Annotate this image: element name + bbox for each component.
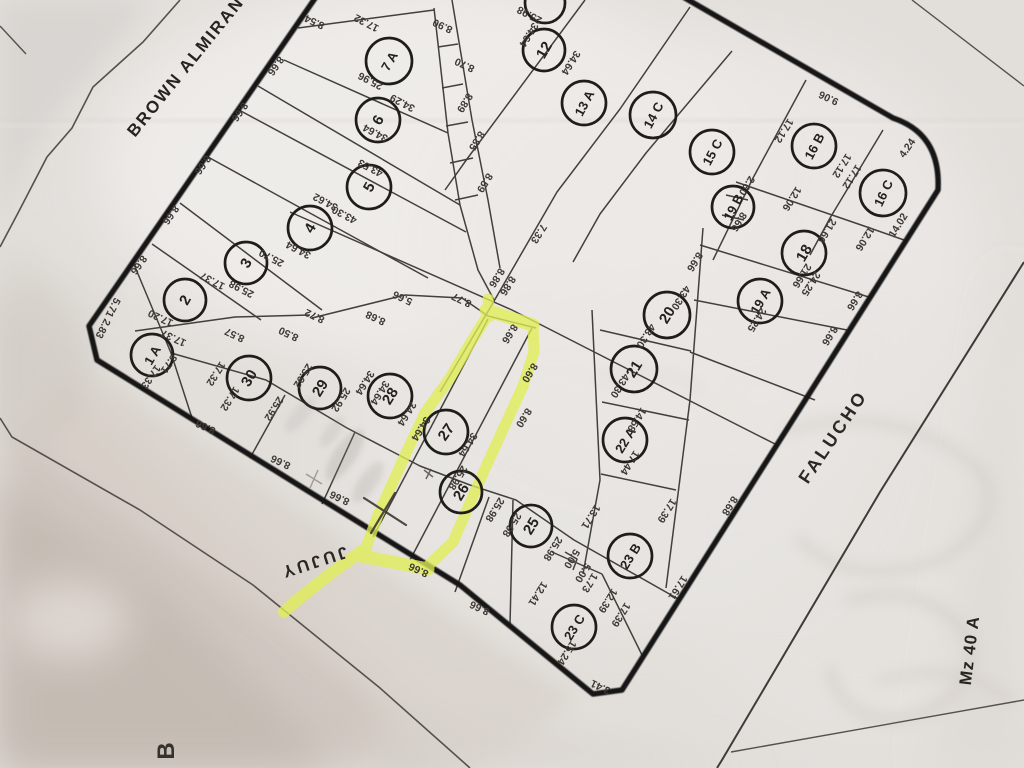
svg-text:B: B [153, 742, 180, 759]
